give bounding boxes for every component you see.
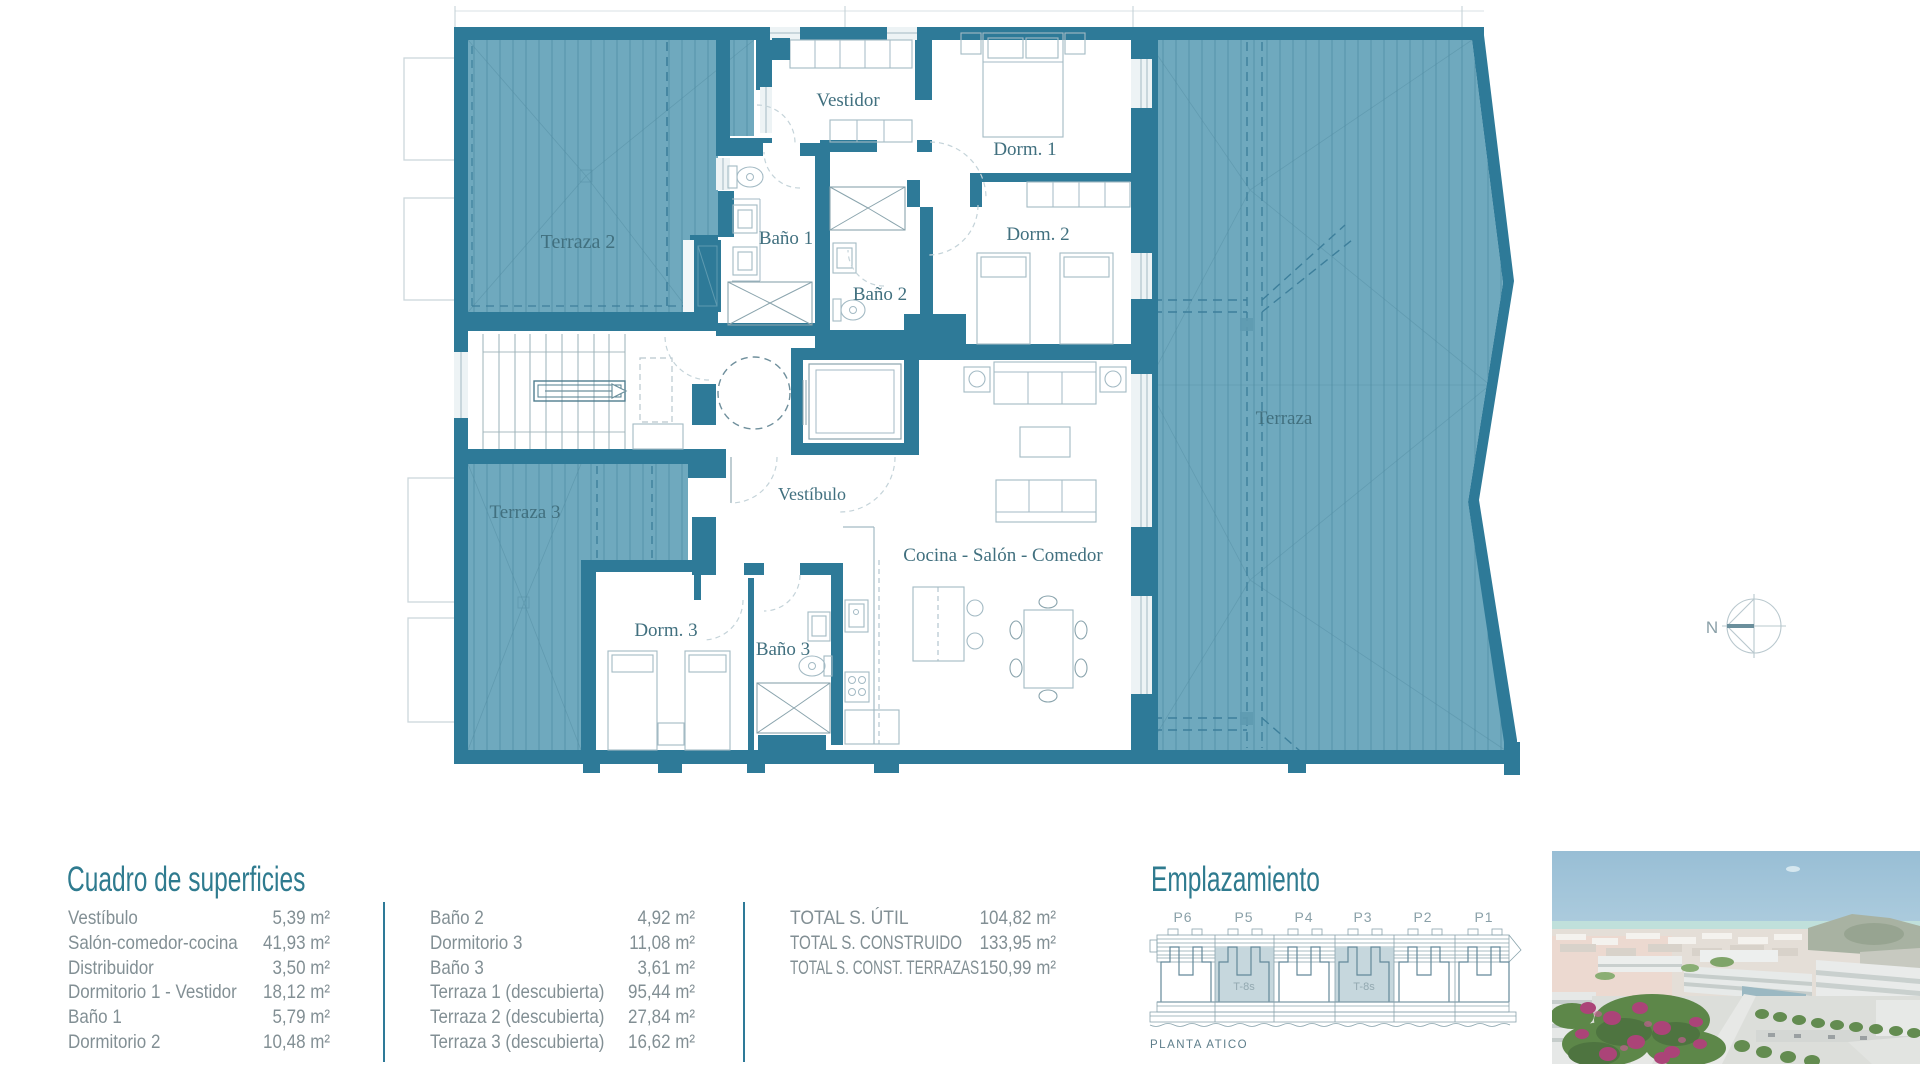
svg-text:P6: P6 [1173,909,1192,925]
svg-text:Vestíbulo: Vestíbulo [778,484,846,504]
svg-text:Dorm. 3: Dorm. 3 [634,620,697,641]
svg-text:P4: P4 [1294,909,1313,925]
svg-text:PLANTA ATICO: PLANTA ATICO [1150,1039,1248,1051]
svg-text:N: N [1706,618,1718,637]
svg-text:Terraza 2: Terraza 2 [541,231,616,253]
svg-text:Dorm. 2: Dorm. 2 [1006,224,1069,245]
svg-text:Cocina - Salón - Comedor: Cocina - Salón - Comedor [903,545,1103,566]
svg-text:P1: P1 [1474,909,1493,925]
svg-text:P2: P2 [1413,909,1432,925]
svg-text:Dorm. 1: Dorm. 1 [993,139,1056,160]
svg-text:T-8s: T-8s [1353,981,1375,993]
svg-text:Baño 1: Baño 1 [759,228,813,249]
svg-text:P5: P5 [1234,909,1253,925]
svg-text:Terraza 3: Terraza 3 [490,502,561,523]
svg-text:Baño 3: Baño 3 [756,639,810,660]
svg-text:Baño 2: Baño 2 [853,284,907,305]
svg-text:Terraza: Terraza [1256,408,1313,429]
svg-text:P3: P3 [1353,909,1372,925]
svg-text:Vestidor: Vestidor [816,90,880,111]
svg-text:T-8s: T-8s [1233,981,1255,993]
